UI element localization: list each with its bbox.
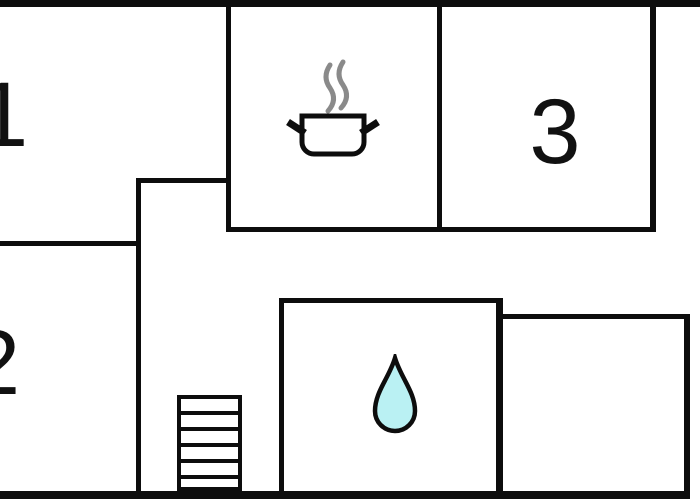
stair-tread [181,411,238,415]
wall-room1-room2-divider [0,241,141,246]
steam-icon [326,65,334,111]
stair-tread [181,427,238,431]
wall-top [0,0,700,7]
wall-bathroom-left [279,298,284,491]
pot-body [302,116,364,154]
wall-bathroom-top [279,298,503,303]
stair-tread [181,475,238,479]
wall-center-vertical [136,178,141,491]
wall-bathroom-right [496,298,503,491]
steam-icon [339,62,347,108]
room-2-label: 2 [0,317,20,409]
wall-step [137,178,231,183]
wall-bottom [0,491,690,499]
wall-room1-right [226,7,231,232]
cooking-pot-icon [278,55,388,165]
wall-right-room-top [496,314,690,319]
water-drop-shape [375,358,415,431]
stairs-icon [177,395,242,491]
wall-room3-right [650,7,656,232]
stair-tread [181,459,238,463]
wall-right-room-right [684,314,690,491]
stair-tread [181,443,238,447]
wall-kitchen-room3-divider [437,7,442,232]
water-drop-icon [370,354,420,436]
room-3-label: 3 [505,86,605,178]
floor-plan: 1 2 3 [0,0,700,499]
room-1-label: 1 [0,69,28,161]
